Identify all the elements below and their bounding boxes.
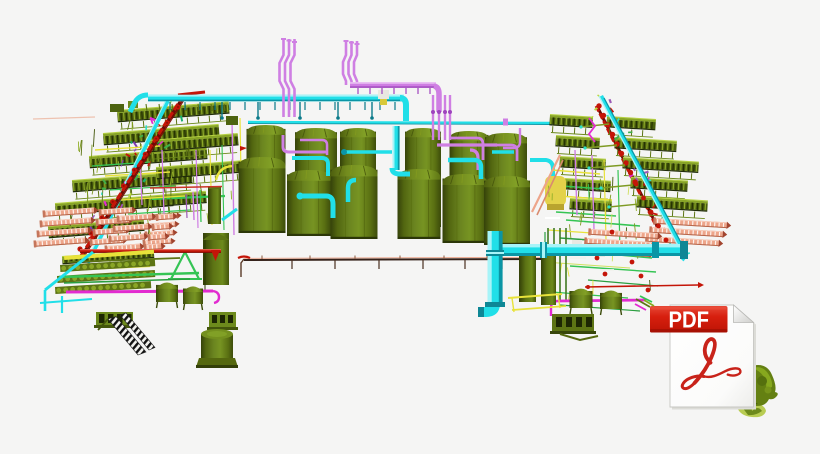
svg-text:PDF: PDF (669, 306, 710, 332)
